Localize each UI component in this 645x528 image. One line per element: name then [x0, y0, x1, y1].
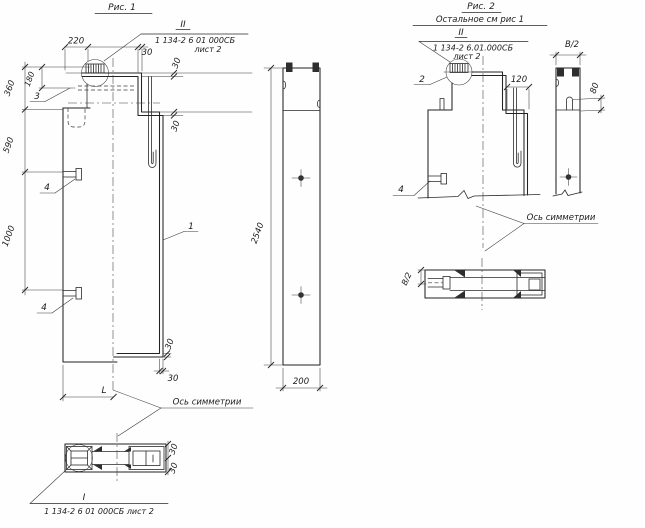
side-view-outline — [283, 68, 320, 365]
fig1-dim-30-plate: 30 — [171, 57, 184, 71]
fig1-dim-30-wall: 30 — [168, 374, 179, 384]
fig1-dim-30-plan-bottom: 30 — [168, 462, 181, 476]
fig1-callout-top-sheet: лист 2 — [193, 45, 221, 54]
fig1-weld-detail — [86, 64, 104, 73]
fig1-dim-30-flange: 30 — [164, 338, 177, 352]
fig1-thickness-dimensions: 30 30 — [170, 57, 184, 134]
fig2-bracket — [428, 174, 447, 185]
side-dim-2540: 2540 — [250, 221, 267, 245]
fig1-detail-callout-bottom: I 1 134-2 6 01 000СБ лист 2 — [30, 470, 168, 516]
fig2-section-slot — [567, 97, 573, 110]
fig1-left-dimensions: 360 180 590 1000 — [1, 62, 90, 295]
fig2-hook-inner — [517, 88, 519, 164]
fig2-section-tab-left — [557, 68, 564, 77]
fig2-callout-top-mark: II — [458, 28, 464, 38]
fig1-dim-L: L — [101, 386, 106, 396]
fig2-header: Рис. 2 Остальное см рис 1 — [413, 2, 547, 26]
fig2-leader-2: 2 — [419, 75, 425, 85]
fig1-plan-view: 30 30 — [65, 433, 181, 483]
fig1-bracket-lower — [63, 288, 82, 300]
side-view-tab-left — [286, 63, 293, 73]
fig2-hook-outer — [514, 88, 522, 167]
fig2-dim-b2-plan: В/2 — [400, 271, 414, 287]
fig1-bottom-dimensions: 30 30 L — [60, 338, 178, 401]
fig2-section-break — [553, 190, 582, 196]
fig2-section-tab-right — [572, 68, 579, 77]
side-view-hole-lower — [292, 287, 310, 304]
side-view: 2540 200 — [250, 63, 327, 392]
fig1-callout-top-doc: 1 134-2 6 01 000СБ — [155, 36, 236, 45]
fig1-dim-30-step: 30 — [170, 120, 183, 134]
fig2-axis-callout: Ось симметрии — [476, 206, 598, 251]
fig2-leaders: 2 4 — [393, 75, 447, 196]
fig2-profile-inner — [472, 76, 528, 196]
side-dim-200: 200 — [293, 377, 309, 387]
fig1-leader-4a: 4 — [44, 183, 50, 193]
fig1-hook-inner — [152, 77, 154, 164]
fig1-hook-outer — [149, 77, 157, 168]
fig2-dim-120-group: 120 — [504, 75, 532, 109]
drawing-sheet: Рис. 1 II 1 134-2 6 01 000СБ лист 2 — [0, 0, 645, 528]
side-view-dimensions: 2540 200 — [250, 65, 327, 391]
fig2-subtitle: Остальное см рис 1 — [436, 15, 524, 25]
fig2-plan-view: В/2 — [400, 258, 545, 310]
fig1-callout-top-mark: II — [180, 20, 186, 30]
fig2-dim-b2-section: В/2 — [565, 40, 579, 50]
fig1-leader-3: 3 — [34, 92, 40, 102]
fig1-callout-bottom-mark: I — [83, 493, 86, 503]
fig2-detail-callout-top: II 1 134-2 6.01.000СБ лист 2 — [419, 28, 528, 62]
technical-drawing: Рис. 1 II 1 134-2 6 01 000СБ лист 2 — [0, 0, 645, 528]
fig1-callout-leader — [104, 34, 141, 61]
fig2-leader-4: 4 — [398, 185, 404, 195]
fig2-title: Рис. 2 — [467, 2, 495, 12]
side-view-hole-upper — [292, 170, 310, 187]
fig2: Рис. 2 Остальное см рис 1 II 1 134-2 6.0… — [393, 2, 605, 310]
fig2-axis-label: Ось симметрии — [527, 213, 596, 223]
fig2-dim-120: 120 — [511, 75, 527, 85]
fig1-title: Рис. 1 — [108, 3, 136, 13]
fig1: Рис. 1 II 1 134-2 6 01 000СБ лист 2 — [1, 3, 253, 516]
fig2-dim-80: 80 — [589, 82, 602, 96]
fig1-hidden-slot — [68, 108, 85, 127]
fig2-callout-top-sheet: лист 2 — [452, 52, 480, 61]
fig1-bracket-upper — [63, 169, 82, 181]
fig1-dim-220: 220 — [68, 37, 84, 47]
fig1-profile-inner — [82, 77, 163, 358]
fig1-callout-bottom-doc: 1 134-2 6 01 000СБ лист 2 — [44, 507, 154, 516]
fig1-dim-1000: 1000 — [1, 224, 18, 248]
fig2-break-line — [418, 191, 540, 199]
fig2-tab — [440, 99, 444, 111]
fig2-section-view: В/2 80 — [550, 40, 605, 196]
fig1-dim-30-plan-top: 30 — [168, 443, 181, 457]
fig1-dim-360: 360 — [3, 79, 18, 98]
fig1-leader-4b: 4 — [41, 303, 47, 313]
fig1-dim-590: 590 — [2, 136, 17, 155]
fig1-detail-callout-top: II 1 134-2 6 01 000СБ лист 2 — [104, 20, 248, 61]
fig1-leader-1: 1 — [188, 222, 194, 232]
fig1-axis-label: Ось симметрии — [173, 398, 242, 408]
fig2-weld-detail — [450, 64, 468, 73]
fig1-dim-30-top: 30 — [142, 48, 153, 58]
fig1-axis-callout: Ось симметрии — [113, 390, 253, 436]
fig1-front-view — [63, 58, 252, 392]
side-view-tab-right — [313, 63, 320, 73]
fig1-header: Рис. 1 — [95, 3, 152, 14]
fig2-section-hole — [560, 169, 577, 186]
